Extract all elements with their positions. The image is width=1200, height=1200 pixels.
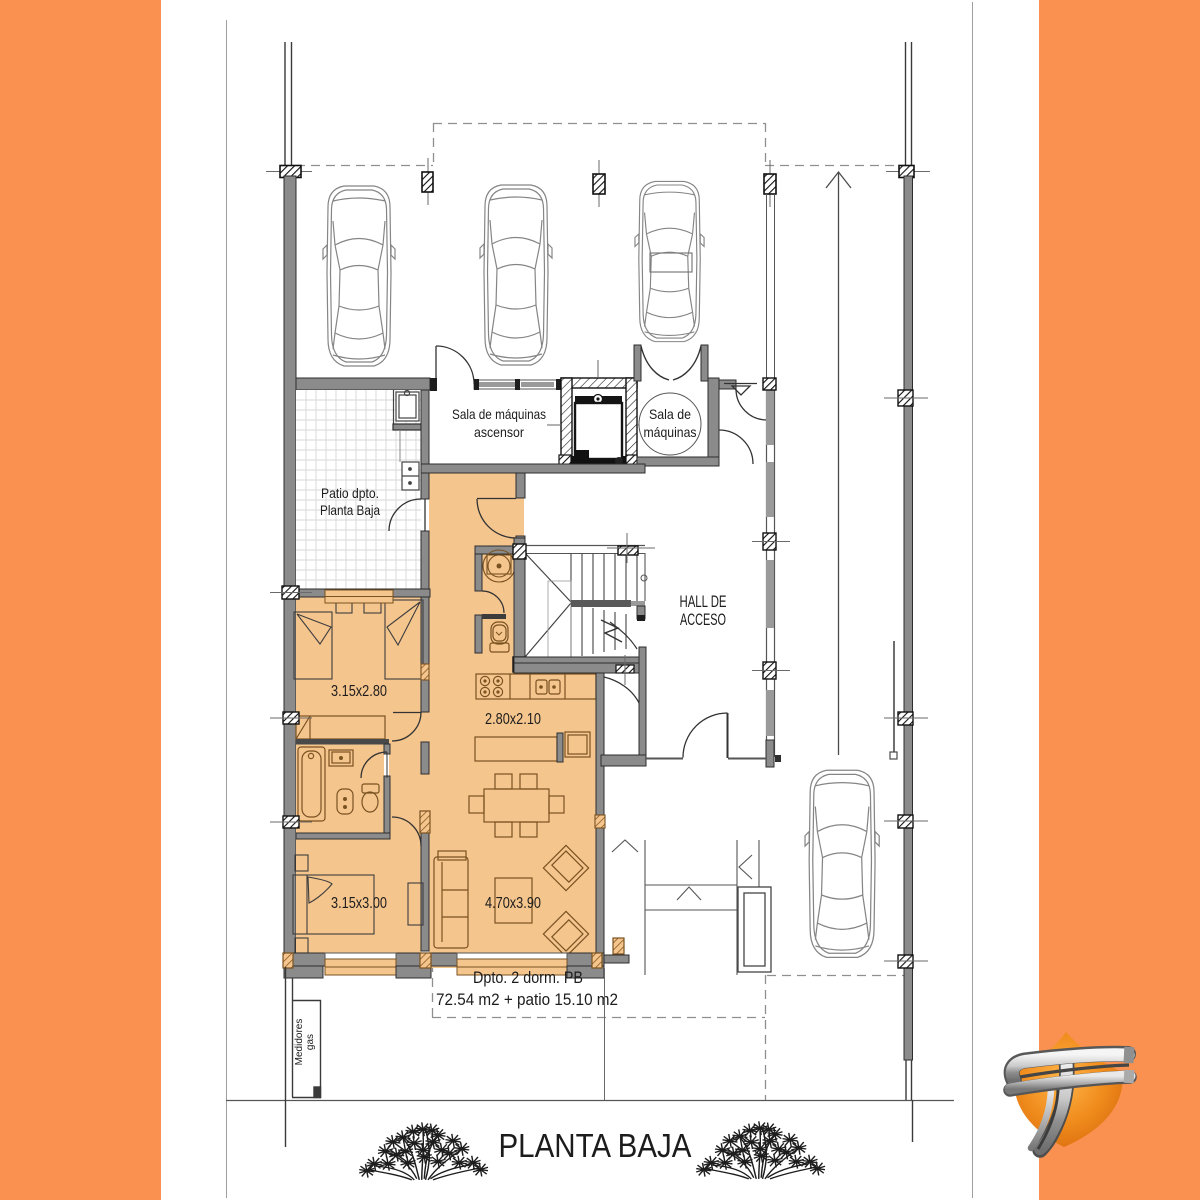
svg-text:ACCESO: ACCESO: [680, 611, 726, 629]
svg-text:gas: gas: [305, 1034, 316, 1050]
svg-text:Sala de máquinas: Sala de máquinas: [452, 406, 546, 422]
svg-text:Patio dpto.: Patio dpto.: [321, 485, 379, 501]
svg-text:72.54 m2 + patio 15.10 m2: 72.54 m2 + patio 15.10 m2: [436, 991, 618, 1009]
svg-text:ascensor: ascensor: [474, 424, 524, 440]
svg-text:máquinas: máquinas: [644, 424, 697, 440]
svg-text:3.15x3.00: 3.15x3.00: [331, 895, 387, 912]
svg-text:Medidores: Medidores: [294, 1019, 305, 1066]
svg-text:Dpto. 2 dorm. PB: Dpto. 2 dorm. PB: [473, 969, 583, 987]
svg-text:2.80x2.10: 2.80x2.10: [485, 711, 541, 728]
svg-text:Planta Baja: Planta Baja: [320, 502, 380, 518]
svg-text:Sala de: Sala de: [649, 406, 691, 422]
svg-text:PLANTA BAJA: PLANTA BAJA: [499, 1127, 692, 1164]
svg-text:HALL DE: HALL DE: [680, 593, 727, 611]
svg-text:4.70x3.90: 4.70x3.90: [485, 895, 541, 912]
svg-text:3.15x2.80: 3.15x2.80: [331, 683, 387, 700]
